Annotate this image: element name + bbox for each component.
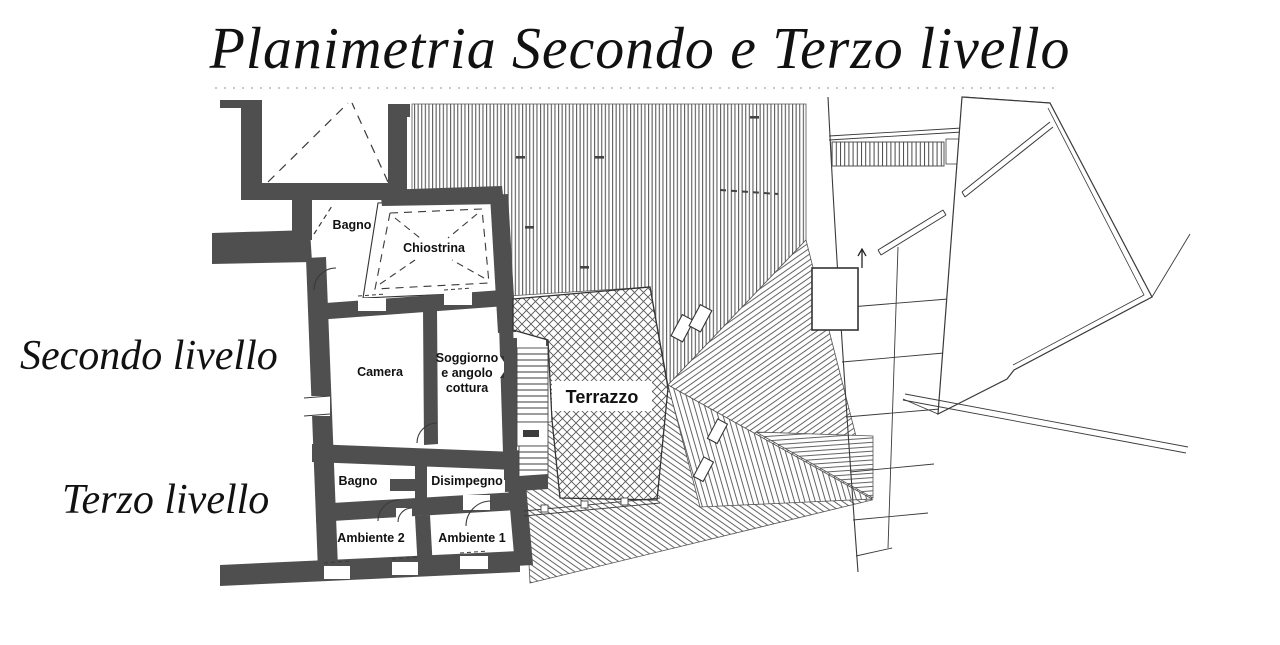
window-opening	[460, 556, 488, 569]
stairs-wall-bottom	[505, 474, 548, 492]
roof-joint-mark	[750, 116, 759, 119]
room-label-ambiente2: Ambiente 2	[337, 531, 404, 545]
room-label-bagno3: Bagno	[339, 474, 378, 488]
third-level-apartment	[220, 450, 533, 586]
room-label-ambiente1: Ambiente 1	[438, 531, 505, 545]
window-opening	[392, 562, 418, 575]
door-opening	[463, 495, 490, 510]
room-label-chiostrina: Chiostrina	[403, 241, 466, 255]
stairs-upper-flight	[517, 348, 548, 422]
roof-joint-mark	[580, 266, 589, 269]
room-label-soggiorno-2: e angolo	[441, 366, 493, 380]
room-label-bagno2: Bagno	[333, 218, 372, 232]
stairs-landing-mark	[523, 430, 539, 437]
courtyard-roof-dashed-lines	[268, 103, 388, 182]
neighbor-building-outline	[938, 97, 1152, 414]
floor-plan-svg: Bagno Chiostrina Camera Soggiorno e ango…	[0, 0, 1280, 645]
roof-joint-mark	[516, 156, 525, 159]
neighbor-wall-double-line	[829, 128, 962, 140]
stairs-lower-flight	[519, 446, 548, 478]
window-opening	[324, 566, 350, 579]
room-label-soggiorno-1: Soggiorno	[436, 351, 499, 365]
roof-shaft	[812, 268, 858, 330]
window-opening	[358, 298, 386, 311]
door-opening	[304, 396, 330, 416]
wall-stub	[220, 100, 243, 108]
room-label-soggiorno-3: cottura	[446, 381, 489, 395]
room-label-terrazzo: Terrazzo	[566, 387, 639, 407]
wall-bagno-stub	[390, 479, 417, 491]
courtyard-wall-right	[388, 104, 407, 183]
roof-joint-mark	[525, 226, 534, 229]
neighbor-stairs-hatch-band	[832, 142, 944, 166]
floor-plan-page: Planimetria Secondo e Terzo livello Seco…	[0, 0, 1280, 645]
dashed-door-line	[314, 206, 332, 234]
courtyard-wall-left	[241, 100, 262, 183]
wall-level3-top	[312, 444, 517, 470]
roof-joint-mark	[595, 156, 604, 159]
room-label-disimpegno: Disimpegno	[431, 474, 503, 488]
courtyard	[220, 100, 407, 200]
wall-protrusion-left	[212, 230, 312, 264]
window-opening	[444, 292, 472, 305]
room-label-camera: Camera	[357, 365, 404, 379]
north-arrow-icon	[858, 249, 866, 268]
stairs-wall-left	[504, 338, 517, 480]
